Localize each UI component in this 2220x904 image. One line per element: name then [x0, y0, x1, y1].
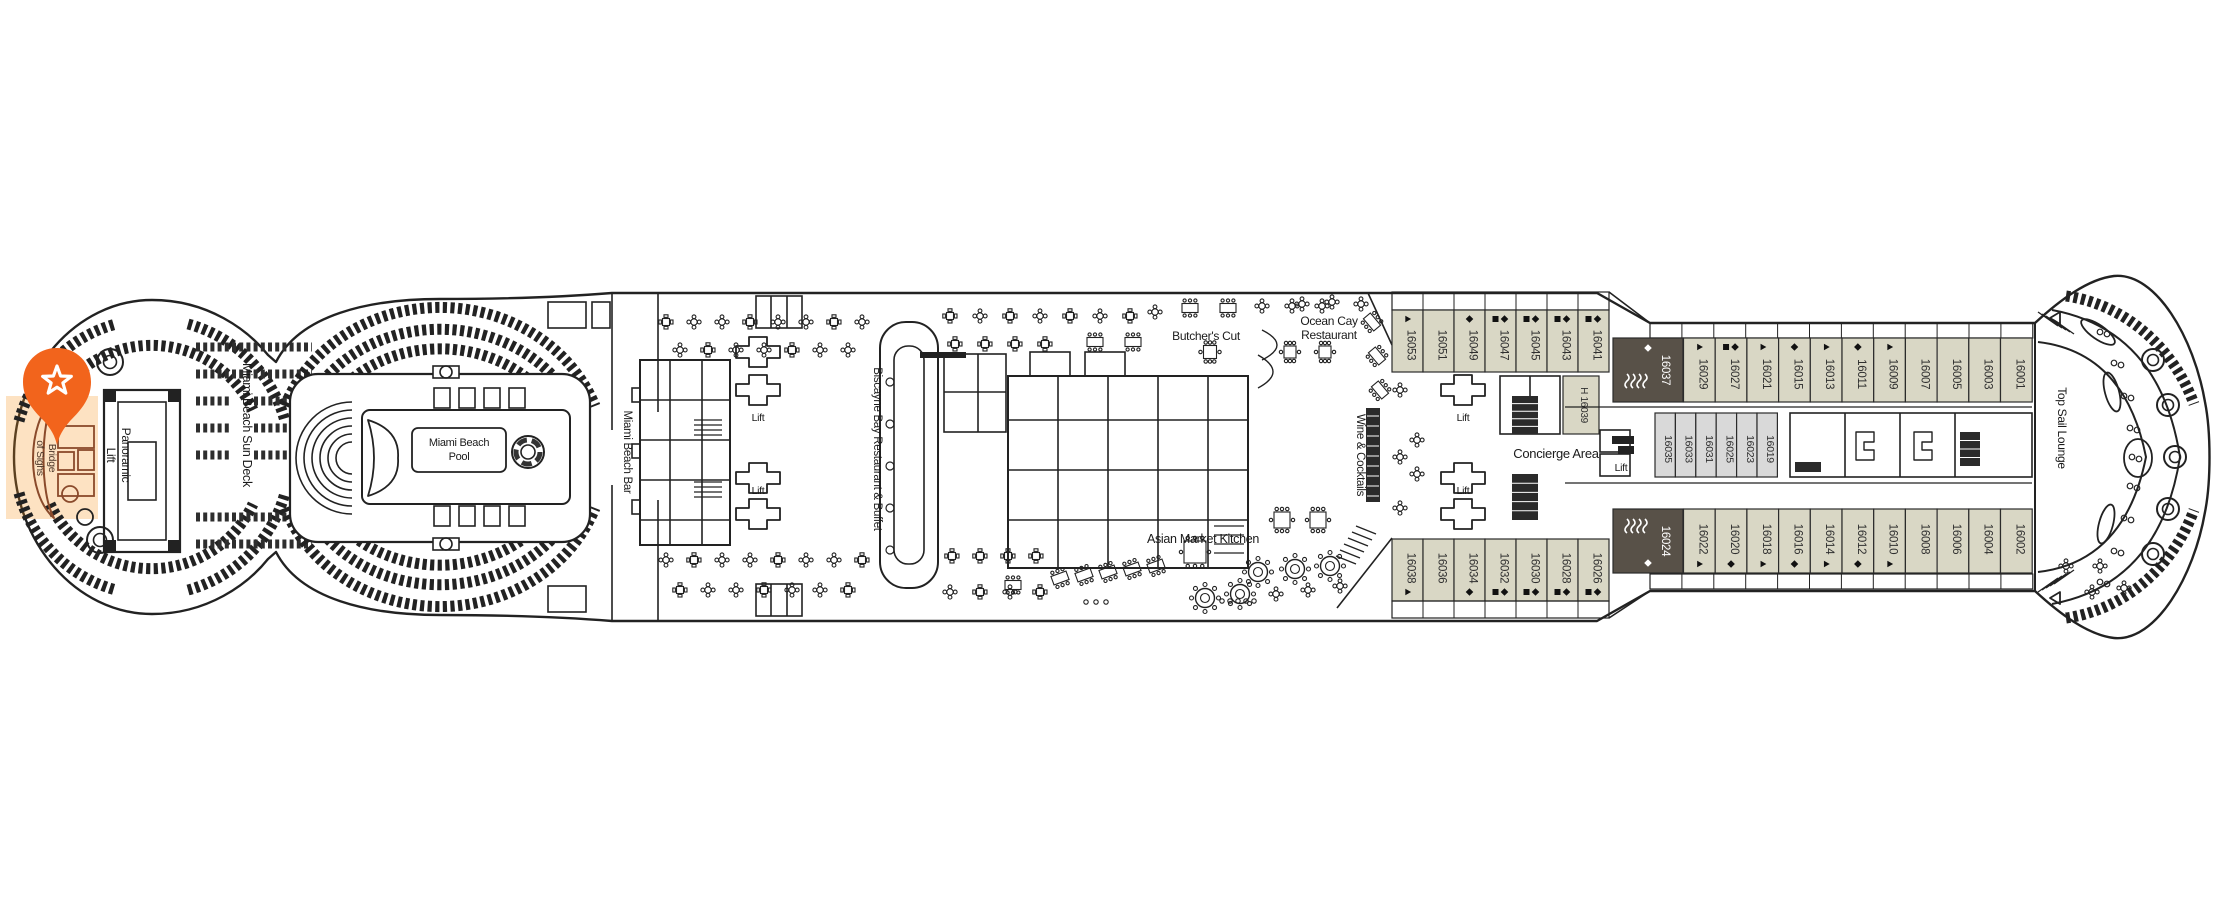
cabin-number: 16020: [1728, 524, 1740, 554]
miami-beach-pool-label: Pool: [449, 451, 470, 463]
lift-label: Lift: [1457, 485, 1470, 497]
cabin-16020[interactable]: 16020: [1715, 509, 1747, 573]
cabin-number: 16051: [1436, 330, 1448, 360]
cabin-number: 16031: [1703, 435, 1715, 463]
cabin-number: 16023: [1744, 435, 1756, 463]
cabin-16021[interactable]: 16021: [1747, 338, 1779, 402]
lift-label: Lift: [752, 412, 765, 424]
cabin-16033[interactable]: 16033: [1675, 413, 1695, 477]
biscayne-bay-restaurant-label: Biscayne Bay Restaurant & Buffet: [871, 367, 883, 532]
cabin-number: 16028: [1560, 553, 1572, 583]
cabin-16013[interactable]: 16013: [1810, 338, 1842, 402]
cabin-number: 16012: [1855, 524, 1867, 554]
cabin-number: 16006: [1950, 524, 1962, 554]
cabin-16029[interactable]: 16029: [1684, 338, 1716, 402]
cabin-number: 16053: [1405, 330, 1417, 360]
cabin-number: 16035: [1662, 435, 1674, 463]
cabin-16006[interactable]: 16006: [1937, 509, 1969, 573]
ocean-cay-restaurant-label: Ocean Cay: [1300, 314, 1358, 328]
cabin-number: 16033: [1683, 435, 1695, 463]
cabin-16015[interactable]: 16015: [1779, 338, 1811, 402]
lift-label: Lift: [752, 485, 765, 497]
asian-market-kitchen-label: Asian Market Kitchen: [1147, 532, 1259, 546]
cabin-number: 16016: [1791, 524, 1803, 554]
cabin-number: 16045: [1529, 330, 1541, 360]
wine-and-cocktails-label: Wine & Cocktails: [1354, 414, 1366, 497]
cabin-16045[interactable]: 16045: [1516, 310, 1547, 372]
ocean-cay-restaurant-label: Restaurant: [1301, 328, 1358, 342]
cabin-16031[interactable]: 16031: [1696, 413, 1716, 477]
cabin-number: 16026: [1591, 553, 1603, 583]
deck-plan: PanoramicLiftBridgeof SighsMiami Beach S…: [0, 0, 2220, 904]
panoramic-lift-label: Lift: [104, 448, 118, 464]
cabin-number: 16001: [2013, 359, 2025, 389]
cabin-16016[interactable]: 16016: [1779, 509, 1811, 573]
cabin-number: 16002: [2013, 524, 2025, 554]
panoramic-lift-label: Panoramic: [119, 428, 133, 483]
cabin-16012[interactable]: 16012: [1842, 509, 1874, 573]
cabin-number: 16030: [1529, 553, 1541, 583]
top-sail-lounge-label: Top Sail Lounge: [2055, 387, 2069, 469]
cabin-number: 16043: [1560, 330, 1572, 360]
cabin-16025[interactable]: 16025: [1716, 413, 1736, 477]
wine-and-cocktails-bar: Wine & Cocktails: [1354, 408, 1380, 502]
cabin-number: 16014: [1823, 524, 1835, 555]
cabin-16010[interactable]: 16010: [1874, 509, 1906, 573]
deck-plan-page: PanoramicLiftBridgeof SighsMiami Beach S…: [0, 0, 2220, 904]
cabin-number: 16029: [1696, 359, 1708, 389]
cabin-number: 16027: [1728, 359, 1740, 389]
cabin-16011[interactable]: 16011: [1842, 338, 1874, 402]
cabin-16009[interactable]: 16009: [1874, 338, 1906, 402]
cabin-16028[interactable]: 16028: [1547, 539, 1578, 601]
miami-beach-bar-label: Miami Beach Bar: [621, 410, 633, 494]
cabin-number: 16004: [1982, 524, 1994, 555]
cabin-number: 16037: [1659, 355, 1671, 385]
cabin-16023[interactable]: 16023: [1737, 413, 1757, 477]
cabin-16003[interactable]: 16003: [1969, 338, 2001, 402]
cabin-number: 16013: [1823, 359, 1835, 389]
cabin-number: 16011: [1855, 359, 1867, 389]
cabin-H-16039[interactable]: H 16039: [1563, 376, 1599, 434]
miami-beach-sun-deck-label: Miami Beach Sun Deck: [240, 363, 254, 488]
cabin-number: 16047: [1498, 330, 1510, 360]
cabin-number: 16007: [1918, 359, 1930, 389]
cabin-number: 16032: [1498, 553, 1510, 583]
cabin-16035[interactable]: 16035: [1655, 413, 1675, 477]
cabin-16004[interactable]: 16004: [1969, 509, 2001, 573]
cabin-16002[interactable]: 16002: [2001, 509, 2033, 573]
cabin-16041[interactable]: 16041: [1578, 310, 1609, 372]
cabin-number: 16009: [1887, 359, 1899, 389]
cabin-16037[interactable]: 16037: [1613, 338, 1683, 402]
cabin-16014[interactable]: 16014: [1810, 509, 1842, 573]
cabin-number: 16003: [1982, 359, 1994, 389]
cabin-16024[interactable]: 16024: [1613, 509, 1683, 573]
cabin-16022[interactable]: 16022: [1684, 509, 1716, 573]
cabin-number: 16008: [1918, 524, 1930, 554]
cabin-number: 16010: [1887, 524, 1899, 554]
cabin-16019[interactable]: 16019: [1757, 413, 1777, 477]
cabin-16030[interactable]: 16030: [1516, 539, 1547, 601]
cabin-number: 16025: [1723, 435, 1735, 463]
cabin-16051[interactable]: 16051: [1423, 310, 1454, 372]
cabin-16034[interactable]: 16034: [1454, 539, 1485, 601]
cabin-number: 16024: [1659, 526, 1671, 557]
cabin-number: 16034: [1467, 553, 1479, 584]
cabin-number: H 16039: [1578, 387, 1589, 423]
butchers-cut-label: Butcher's Cut: [1172, 329, 1241, 343]
cabin-16008[interactable]: 16008: [1905, 509, 1937, 573]
cabin-number: 16036: [1436, 553, 1448, 583]
cabin-16043[interactable]: 16043: [1547, 310, 1578, 372]
cabin-16053[interactable]: 16053: [1392, 310, 1423, 372]
cabin-number: 16019: [1764, 435, 1776, 463]
lift-label: Lift: [1615, 462, 1628, 474]
cabin-number: 16015: [1791, 359, 1803, 389]
cabin-number: 16018: [1760, 524, 1772, 554]
cabin-number: 16038: [1405, 553, 1417, 583]
cabin-16005[interactable]: 16005: [1937, 338, 1969, 402]
cabin-16038[interactable]: 16038: [1392, 539, 1423, 601]
lift-label: Lift: [1457, 412, 1470, 424]
cabin-16049[interactable]: 16049: [1454, 310, 1485, 372]
bridge-of-sighs-label: Bridge: [46, 444, 58, 473]
miami-beach-pool-label: Miami Beach: [429, 437, 489, 449]
cabin-number: 16049: [1467, 330, 1479, 360]
cabin-16047[interactable]: 16047: [1485, 310, 1516, 372]
cabin-number: 16021: [1760, 359, 1772, 389]
cabin-16001[interactable]: 16001: [2001, 338, 2033, 402]
cabin-16018[interactable]: 16018: [1747, 509, 1779, 573]
cabin-number: 16022: [1696, 524, 1708, 554]
bridge-of-sighs-label: of Sighs: [34, 440, 46, 476]
cabin-16036[interactable]: 16036: [1423, 539, 1454, 601]
cabin-16026[interactable]: 16026: [1578, 539, 1609, 601]
cabin-16032[interactable]: 16032: [1485, 539, 1516, 601]
cabin-16027[interactable]: 16027: [1715, 338, 1747, 402]
cabin-number: 16005: [1950, 359, 1962, 389]
cabin-number: 16041: [1591, 330, 1603, 360]
concierge-area-label: Concierge Area: [1513, 446, 1599, 461]
cabin-16007[interactable]: 16007: [1905, 338, 1937, 402]
